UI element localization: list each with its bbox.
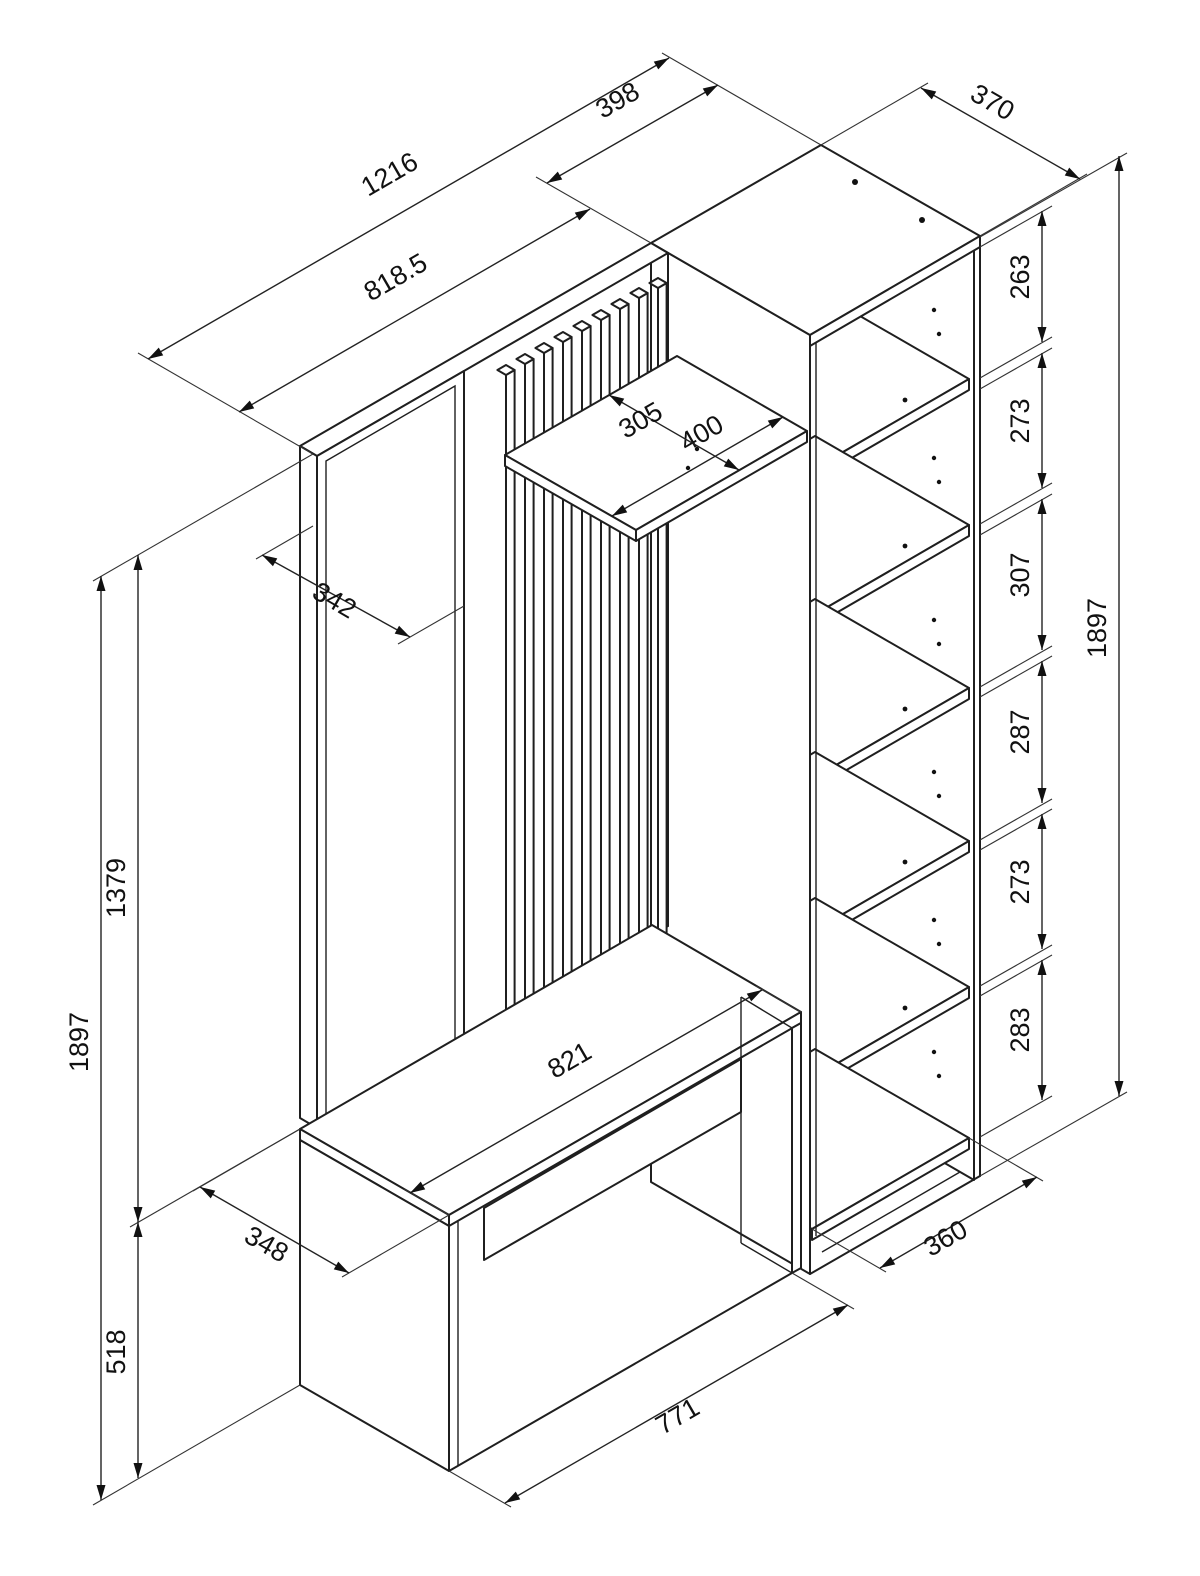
dim-label-bench-depth: 348 [239,1220,293,1269]
technical-drawing-page: 1216 398 818.5 370 1897 263 273 307 287 … [0,0,1200,1576]
dim-label-comp-1: 263 [1005,254,1035,299]
dim-label-bench-bottom-width: 771 [650,1392,704,1441]
dim-label-panel-height: 1379 [101,858,131,918]
bench-floor-edge [449,1273,792,1471]
dim-compartment-2: 273 [980,348,1052,524]
dim-label-comp-4: 287 [1005,709,1035,754]
furniture-isometric-drawing: 1216 398 818.5 370 1897 263 273 307 287 … [0,0,1200,1576]
bench-right-panel [792,1023,801,1273]
panel-left-edge [300,446,317,1128]
dim-compartment-4: 287 [980,656,1052,840]
dim-compartment-5: 273 [980,809,1052,986]
dim-label-overall-width: 1216 [356,146,423,202]
dim-compartment-1: 263 [980,206,1052,378]
dim-label-total-height: 1897 [64,1012,94,1072]
dim-label-panel-width: 818.5 [359,247,433,307]
mirror [317,371,464,1128]
dim-label-bench-height: 518 [101,1329,131,1374]
dim-compartment-6: 283 [980,955,1052,1137]
dim-compartment-3: 307 [980,494,1052,687]
dim-label-comp-6: 283 [1005,1007,1035,1052]
dim-label-comp-5: 273 [1005,859,1035,904]
dim-unit-height: 1897 [980,153,1127,1176]
dim-unit-width: 398 [536,76,718,243]
dim-label-comp-3: 307 [1005,552,1035,597]
dim-label-unit-depth-top: 370 [965,78,1019,127]
dim-label-unit-width: 398 [590,76,644,125]
dim-bench-height: 518 [101,1222,143,1478]
dim-bench-bottom-width: 771 [449,1273,854,1507]
dim-label-comp-2: 273 [1005,398,1035,443]
dim-panel-height: 1379 [101,555,300,1227]
dim-label-unit-depth-bottom: 360 [918,1214,972,1263]
dim-label-unit-height: 1897 [1082,598,1112,658]
